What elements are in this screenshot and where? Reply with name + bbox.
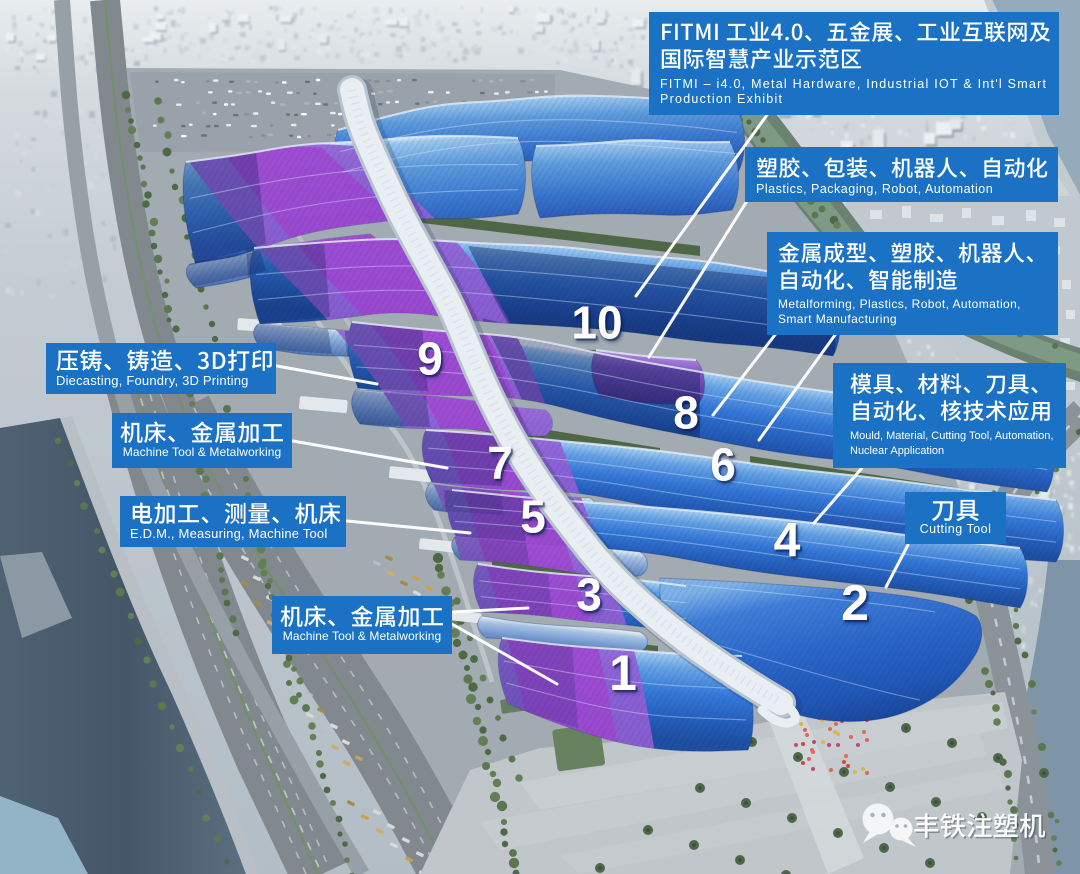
svg-text:7: 7 (487, 437, 513, 489)
svg-text:5: 5 (520, 491, 546, 543)
svg-text:丰铁注塑机: 丰铁注塑机 (913, 805, 1046, 844)
svg-text:6: 6 (710, 439, 736, 491)
svg-text:9: 9 (417, 333, 443, 385)
svg-text:2: 2 (841, 575, 869, 631)
svg-text:3: 3 (576, 569, 602, 621)
svg-text:1: 1 (609, 645, 637, 701)
svg-text:8: 8 (673, 387, 699, 439)
svg-text:4: 4 (774, 514, 801, 567)
svg-text:10: 10 (571, 297, 622, 349)
